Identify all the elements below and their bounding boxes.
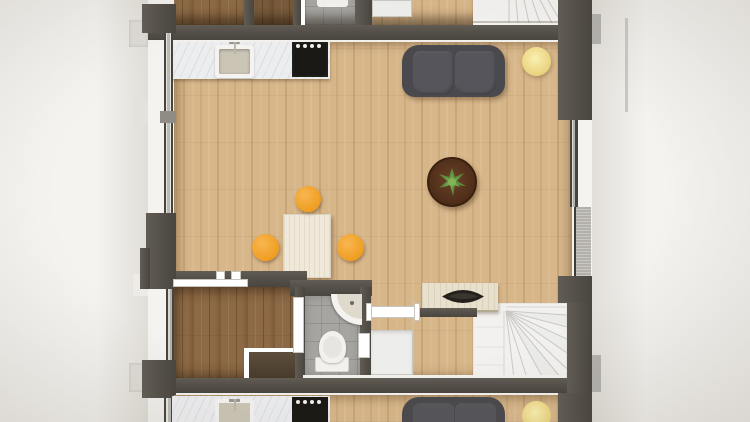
upper-unit-hall-floor	[174, 0, 244, 25]
left-pillar-top	[142, 4, 176, 33]
top-exterior-wall	[148, 25, 592, 40]
yellow-side-table	[522, 47, 551, 76]
washing-machine	[370, 330, 413, 375]
decor-bowl-wrap	[440, 288, 486, 305]
bottom-exterior-wall	[148, 378, 592, 393]
upper-unit-wall-2	[293, 0, 301, 25]
left-pillar-mid	[146, 213, 176, 289]
cooktop-knob	[303, 44, 307, 48]
lower-unit-side-table	[522, 401, 551, 422]
winder-staircase	[473, 303, 567, 378]
upper-unit-staircase	[473, 0, 558, 23]
closet-nook-frame-left	[244, 348, 249, 378]
sofa-cushion-left	[413, 51, 454, 95]
ambient-shadow-left	[96, 0, 148, 422]
lower-unit-sofa-cushion-right	[455, 403, 496, 422]
closet-nook-frame-top	[244, 348, 300, 352]
right-wall-lower-unit	[558, 393, 592, 422]
upper-unit-wall-3	[355, 0, 372, 25]
sofa-cushion-right	[455, 51, 496, 95]
washbasin-drain	[350, 301, 354, 305]
cooktop-knob	[317, 400, 321, 404]
floor-plan-render	[0, 0, 750, 422]
right-wall-top-block	[558, 0, 592, 120]
hall-door-frame	[173, 279, 248, 287]
right-window	[570, 120, 578, 207]
left-pillar-mid-bump	[140, 248, 150, 289]
cooktop-knob	[317, 44, 321, 48]
utility-door-post-right	[414, 303, 420, 321]
upper-unit-washing-machine	[372, 0, 412, 17]
hall-door-leaf-1	[216, 271, 225, 280]
upper-unit-nook-floor	[254, 0, 293, 25]
utility-door-post-left	[366, 303, 372, 321]
decor-bowl	[440, 288, 486, 305]
bathroom-side-door	[358, 333, 370, 358]
upper-unit-toilet	[317, 0, 348, 7]
hall-door-leaf-2	[231, 271, 241, 280]
closet-nook-floor	[248, 352, 300, 378]
left-window-upper	[164, 33, 173, 213]
lower-unit-faucet-stem	[234, 399, 236, 411]
upper-unit-staircase-wrap	[473, 0, 558, 23]
upper-unit-wall-1	[244, 0, 254, 25]
dining-chair-top	[295, 186, 321, 212]
utility-door	[367, 306, 419, 318]
cooktop-knob	[303, 400, 307, 404]
bathroom-door	[293, 297, 304, 353]
right-wall-mid-block	[558, 276, 592, 303]
plant-wrap	[437, 167, 467, 197]
cooktop-knob	[296, 400, 300, 404]
left-window-hall	[166, 289, 174, 360]
balcony-railing-right	[625, 18, 628, 112]
exterior-sill-left	[132, 98, 148, 126]
wall-finish-line-top	[174, 40, 560, 42]
lower-unit-sofa-cushion-left	[413, 403, 454, 422]
dining-chair-right	[337, 234, 364, 261]
cooktop-knob	[310, 400, 314, 404]
kitchen-faucet-stem	[234, 41, 236, 54]
left-pillar-bottom	[142, 360, 176, 398]
dining-chair-left	[252, 234, 279, 261]
balcony-door-threshold	[574, 207, 591, 276]
sideboard-wall	[418, 308, 477, 317]
staircase-wrap	[473, 303, 567, 378]
potted-plant	[437, 167, 467, 197]
toilet-bowl-inner	[323, 336, 342, 358]
cooktop-knob	[296, 44, 300, 48]
dining-table	[283, 214, 331, 278]
upper-unit-wood-2	[412, 0, 473, 25]
left-window-mullion	[160, 111, 176, 123]
cooktop-knob	[310, 44, 314, 48]
